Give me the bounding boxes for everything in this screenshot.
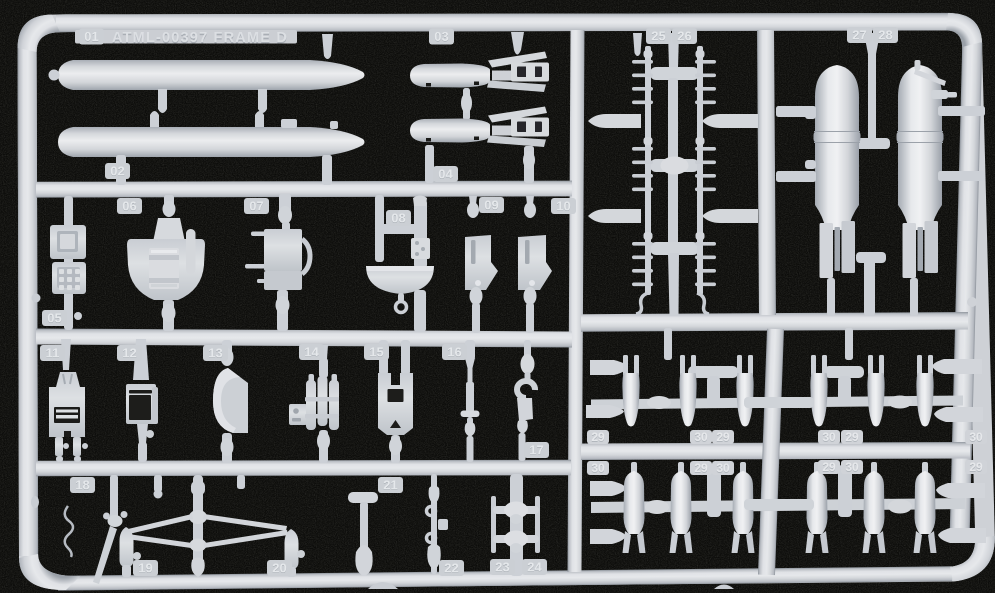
svg-text:12: 12 xyxy=(122,345,136,360)
svg-text:10: 10 xyxy=(556,198,570,213)
svg-text:30: 30 xyxy=(716,461,730,475)
svg-text:24: 24 xyxy=(527,559,542,574)
svg-text:25: 25 xyxy=(651,28,665,43)
svg-text:05: 05 xyxy=(47,310,61,325)
svg-text:15: 15 xyxy=(369,344,383,359)
svg-text:29: 29 xyxy=(591,430,605,444)
svg-text:30: 30 xyxy=(822,430,836,444)
svg-text:06: 06 xyxy=(122,198,136,213)
svg-text:29: 29 xyxy=(822,460,836,474)
svg-text:29: 29 xyxy=(694,461,708,475)
svg-text:20: 20 xyxy=(272,560,286,575)
svg-text:19: 19 xyxy=(138,560,152,575)
svg-text:16: 16 xyxy=(447,344,461,359)
svg-text:30: 30 xyxy=(845,460,859,474)
svg-text:30: 30 xyxy=(969,430,983,444)
svg-text:21: 21 xyxy=(383,477,397,492)
svg-text:22: 22 xyxy=(444,560,458,575)
svg-text:ATML-00397 FRAME D: ATML-00397 FRAME D xyxy=(112,30,288,46)
svg-text:23: 23 xyxy=(495,559,509,574)
svg-text:02: 02 xyxy=(110,163,124,178)
svg-text:09: 09 xyxy=(484,197,498,212)
svg-text:11: 11 xyxy=(46,345,60,360)
svg-text:14: 14 xyxy=(304,344,319,359)
svg-text:29: 29 xyxy=(845,430,859,444)
svg-text:08: 08 xyxy=(391,210,405,225)
svg-text:17: 17 xyxy=(529,442,543,457)
svg-text:29: 29 xyxy=(969,460,983,474)
svg-text:13: 13 xyxy=(208,345,222,360)
svg-text:26: 26 xyxy=(677,28,691,43)
svg-text:30: 30 xyxy=(694,430,708,444)
svg-text:07: 07 xyxy=(249,198,263,213)
svg-text:01: 01 xyxy=(84,29,98,44)
svg-text:27: 27 xyxy=(852,27,866,42)
svg-text:28: 28 xyxy=(878,27,892,42)
svg-text:03: 03 xyxy=(434,29,448,44)
svg-text:04: 04 xyxy=(438,166,453,181)
svg-text:30: 30 xyxy=(591,461,605,475)
svg-text:18: 18 xyxy=(75,477,89,492)
svg-text:29: 29 xyxy=(716,430,730,444)
